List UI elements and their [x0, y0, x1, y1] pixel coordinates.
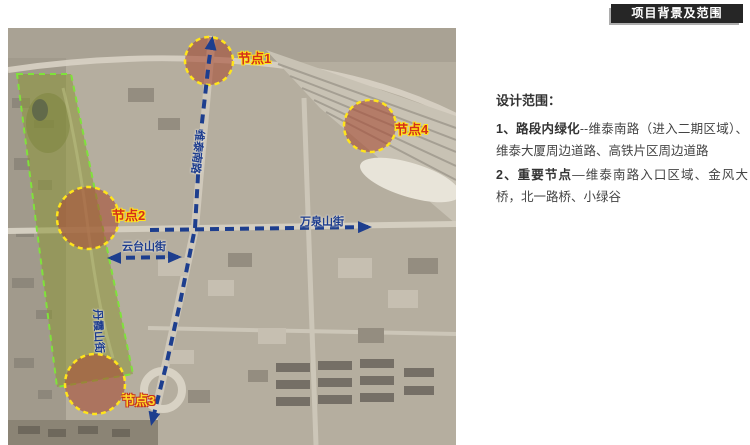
scope-item-2: 2、重要节点—维泰南路入口区域、金风大桥，北一路桥、小绿谷 — [496, 164, 748, 208]
node-circle-3 — [65, 354, 125, 414]
page-title: 项目背景及范围 — [611, 4, 743, 23]
node-circle-2 — [57, 187, 119, 249]
scope-item-1: 1、路段内绿化--维泰南路（进入二期区域）、维泰大厦周边道路、高铁片区周边道路 — [496, 118, 748, 162]
scope-item-2-label: 2、重要节点 — [496, 168, 572, 182]
design-scope-heading: 设计范围： — [496, 90, 748, 109]
map-graphics — [8, 28, 456, 445]
design-scope: 设计范围： 1、路段内绿化--维泰南路（进入二期区域）、维泰大厦周边道路、高铁片… — [496, 90, 748, 210]
satellite-map: 节点1 节点2 节点3 节点4 维泰南路 万泉山街 云台山街 丹霞山街 — [8, 28, 456, 445]
scope-item-1-label: 1、路段内绿化 — [496, 122, 580, 136]
slide: 项目背景及范围 — [0, 0, 750, 445]
node-circle-4 — [344, 100, 396, 152]
